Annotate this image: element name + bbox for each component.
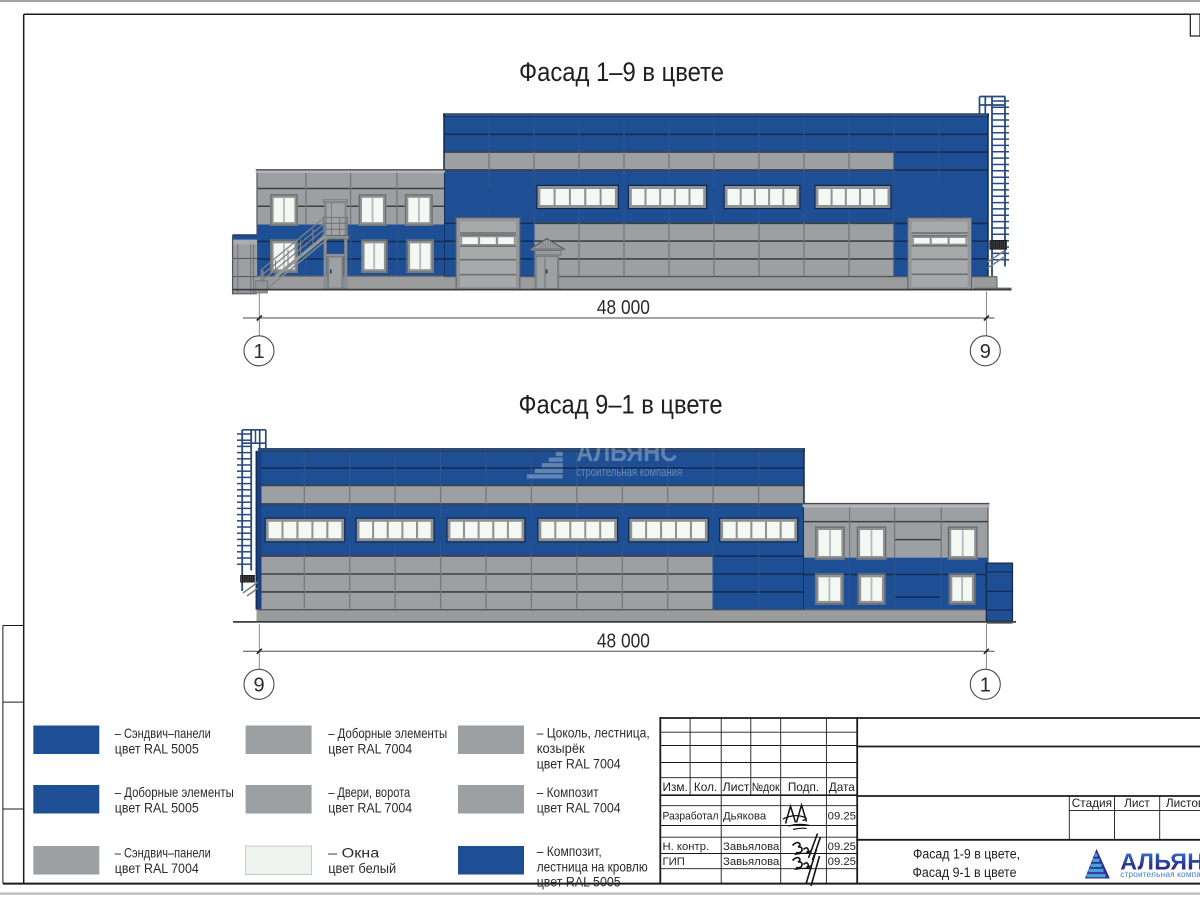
svg-text:1: 1 — [253, 341, 264, 363]
svg-text:цвет RAL 7004: цвет RAL 7004 — [537, 757, 621, 772]
svg-text:48 000: 48 000 — [597, 631, 650, 653]
svg-text:Дата: Дата — [829, 780, 856, 794]
svg-text:цвет белый: цвет белый — [328, 861, 396, 876]
svg-text:– Окна: – Окна — [328, 846, 380, 861]
svg-text:Подп.: Подп. — [788, 780, 819, 794]
svg-text:цвет RAL 5005: цвет RAL 5005 — [115, 742, 199, 757]
svg-text:Завьялова: Завьялова — [723, 841, 780, 853]
svg-text:цвет RAL 7004: цвет RAL 7004 — [328, 801, 412, 816]
svg-text:Фасад 1–9 в цвете: Фасад 1–9 в цвете — [519, 57, 724, 87]
svg-text:Фасад 9-1 в цвете: Фасад 9-1 в цвете — [913, 865, 1017, 881]
svg-text:строительная компания: строительная компания — [576, 465, 682, 479]
svg-text:– Композит: – Композит — [537, 785, 599, 800]
svg-text:цвет RAL 7004: цвет RAL 7004 — [328, 742, 412, 757]
svg-text:– Цоколь, лестница,: – Цоколь, лестница, — [537, 726, 650, 741]
svg-text:Кол.: Кол. — [694, 780, 717, 794]
svg-text:9: 9 — [980, 341, 991, 363]
svg-text:Изм.: Изм. — [663, 780, 688, 794]
svg-text:Лист: Лист — [1124, 796, 1150, 810]
svg-text:09.25: 09.25 — [828, 811, 856, 823]
svg-text:– Доборные элементы: – Доборные элементы — [328, 726, 447, 741]
svg-text:– Сэндвич–панели: – Сэндвич–панели — [115, 726, 211, 741]
svg-text:Лист: Лист — [723, 780, 751, 794]
svg-text:№док: №док — [752, 780, 781, 794]
svg-text:Листов: Листов — [1166, 796, 1200, 810]
svg-text:– Доборные элементы: – Доборные элементы — [115, 785, 234, 800]
svg-text:строительная компания: строительная компания — [1120, 870, 1200, 879]
svg-text:цвет RAL 5005: цвет RAL 5005 — [115, 801, 199, 816]
svg-text:– Композит,: – Композит, — [537, 844, 602, 859]
svg-text:– Сэндвич–панели: – Сэндвич–панели — [115, 846, 211, 861]
svg-text:Фасад 1-9 в цвете,: Фасад 1-9 в цвете, — [913, 847, 1020, 863]
svg-text:1: 1 — [980, 674, 991, 696]
svg-text:Завьялова: Завьялова — [723, 856, 780, 868]
svg-text:ГИП: ГИП — [663, 856, 685, 868]
svg-text:цвет RAL 7004: цвет RAL 7004 — [115, 861, 199, 876]
svg-text:– Двери, ворота: – Двери, ворота — [328, 785, 410, 800]
svg-text:Дьякова: Дьякова — [723, 811, 767, 823]
svg-text:Н. контр.: Н. контр. — [663, 841, 710, 853]
svg-text:48 000: 48 000 — [597, 297, 650, 319]
svg-text:цвет RAL 7004: цвет RAL 7004 — [537, 801, 621, 816]
svg-text:Разработал: Разработал — [663, 811, 719, 823]
svg-text:9: 9 — [253, 674, 264, 696]
svg-text:09.25: 09.25 — [828, 841, 856, 853]
svg-text:Стадия: Стадия — [1072, 796, 1112, 810]
svg-text:лестница на кровлю: лестница на кровлю — [537, 860, 648, 875]
svg-text:Фасад 9–1 в цвете: Фасад 9–1 в цвете — [519, 390, 723, 420]
svg-text:козырёк: козырёк — [537, 741, 586, 756]
svg-text:09.25: 09.25 — [828, 856, 856, 868]
svg-text:цвет RAL 5005: цвет RAL 5005 — [537, 875, 621, 890]
